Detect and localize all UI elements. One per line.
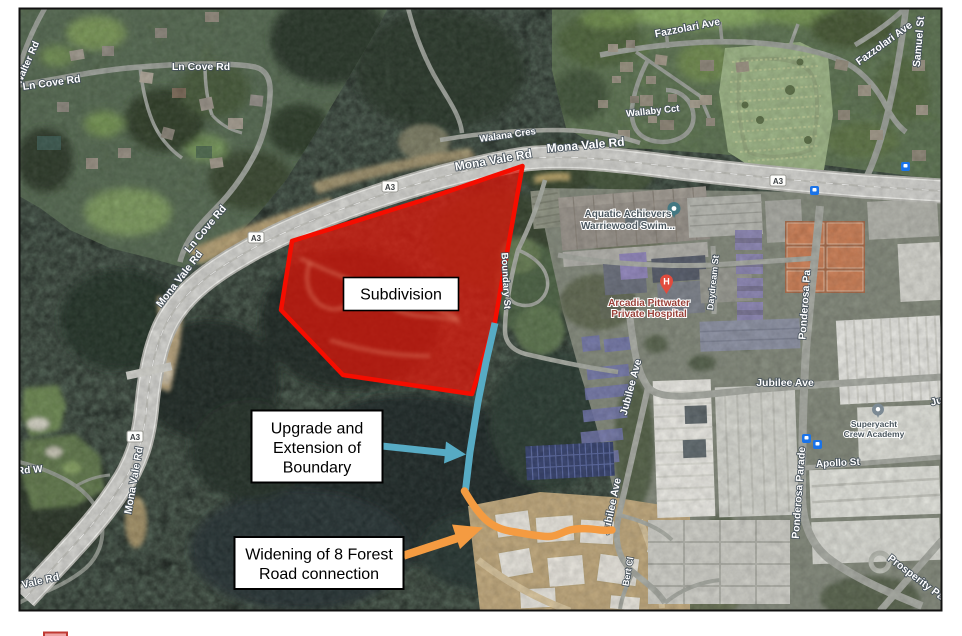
svg-text:Crew Academy: Crew Academy [844, 429, 905, 439]
svg-text:Aquatic Achievers: Aquatic Achievers [585, 209, 672, 220]
svg-text:A3: A3 [251, 234, 262, 243]
svg-text:Widening of 8 Forest: Widening of 8 Forest [245, 547, 393, 564]
svg-text:A3: A3 [773, 177, 784, 186]
svg-text:Boundary: Boundary [283, 460, 352, 477]
svg-text:Extension of: Extension of [273, 440, 362, 457]
svg-text:Private Hospital: Private Hospital [611, 309, 687, 320]
svg-text:Apollo St: Apollo St [816, 457, 861, 470]
svg-text:H: H [663, 277, 670, 287]
svg-text:Arcadia Pittwater: Arcadia Pittwater [608, 298, 690, 309]
svg-text:Road connection: Road connection [259, 566, 379, 583]
svg-text:Warriewood Swim...: Warriewood Swim... [581, 221, 675, 232]
svg-text:Subdivision: Subdivision [360, 287, 442, 304]
svg-text:Upgrade and: Upgrade and [271, 421, 364, 438]
svg-text:Superyacht: Superyacht [851, 419, 897, 429]
svg-text:Jubilee Ave: Jubilee Ave [756, 377, 814, 389]
svg-text:Rd W: Rd W [17, 464, 44, 477]
svg-text:A3: A3 [130, 433, 141, 442]
svg-text:A3: A3 [385, 183, 396, 192]
svg-text:Ln Cove Rd: Ln Cove Rd [172, 61, 230, 73]
